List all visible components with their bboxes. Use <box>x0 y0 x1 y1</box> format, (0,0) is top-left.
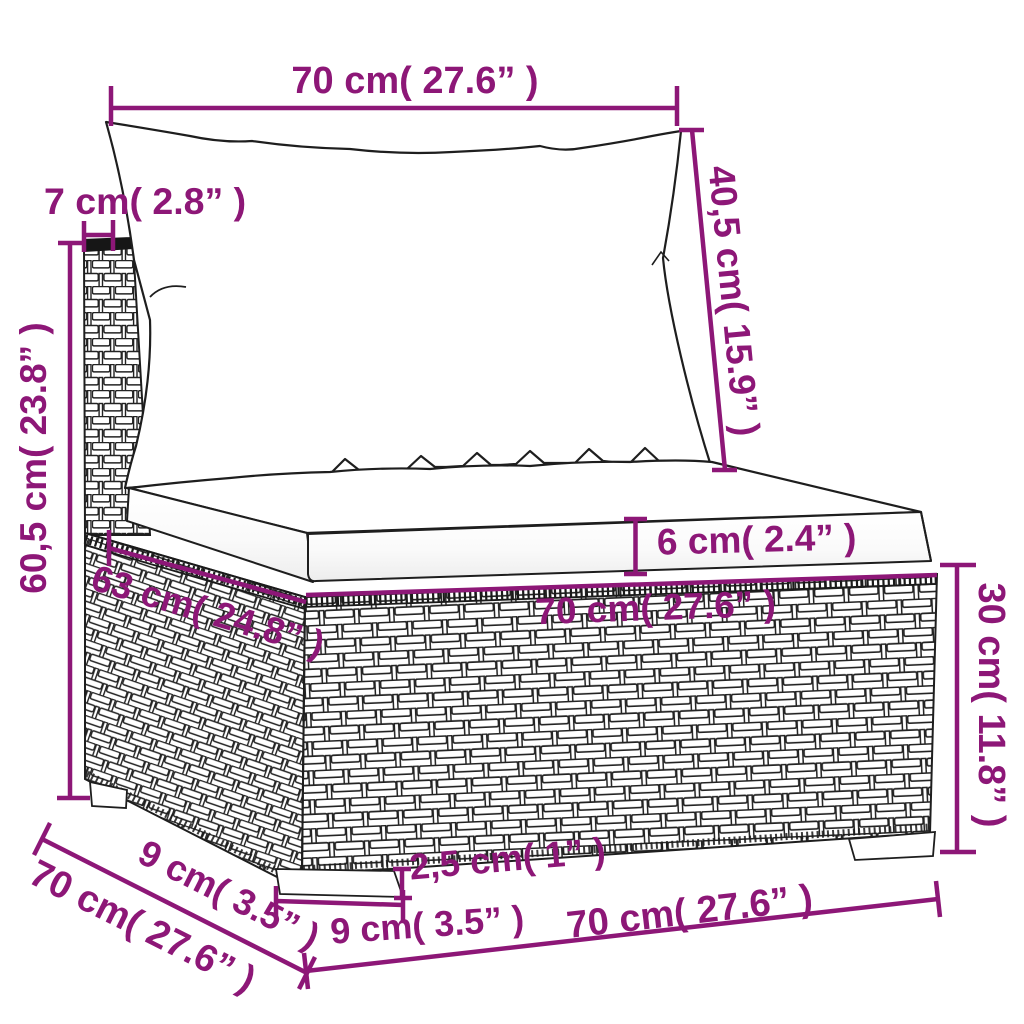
svg-text:60,5 cm( 23.8” ): 60,5 cm( 23.8” ) <box>13 322 54 593</box>
svg-text:7 cm( 2.8” ): 7 cm( 2.8” ) <box>44 180 246 222</box>
svg-text:6 cm( 2.4” ): 6 cm( 2.4” ) <box>656 516 856 562</box>
svg-text:70 cm( 27.6” ): 70 cm( 27.6” ) <box>291 60 538 102</box>
svg-text:30 cm( 11.8” ): 30 cm( 11.8” ) <box>970 582 1012 827</box>
svg-text:70 cm( 27.6” ): 70 cm( 27.6” ) <box>535 583 777 632</box>
